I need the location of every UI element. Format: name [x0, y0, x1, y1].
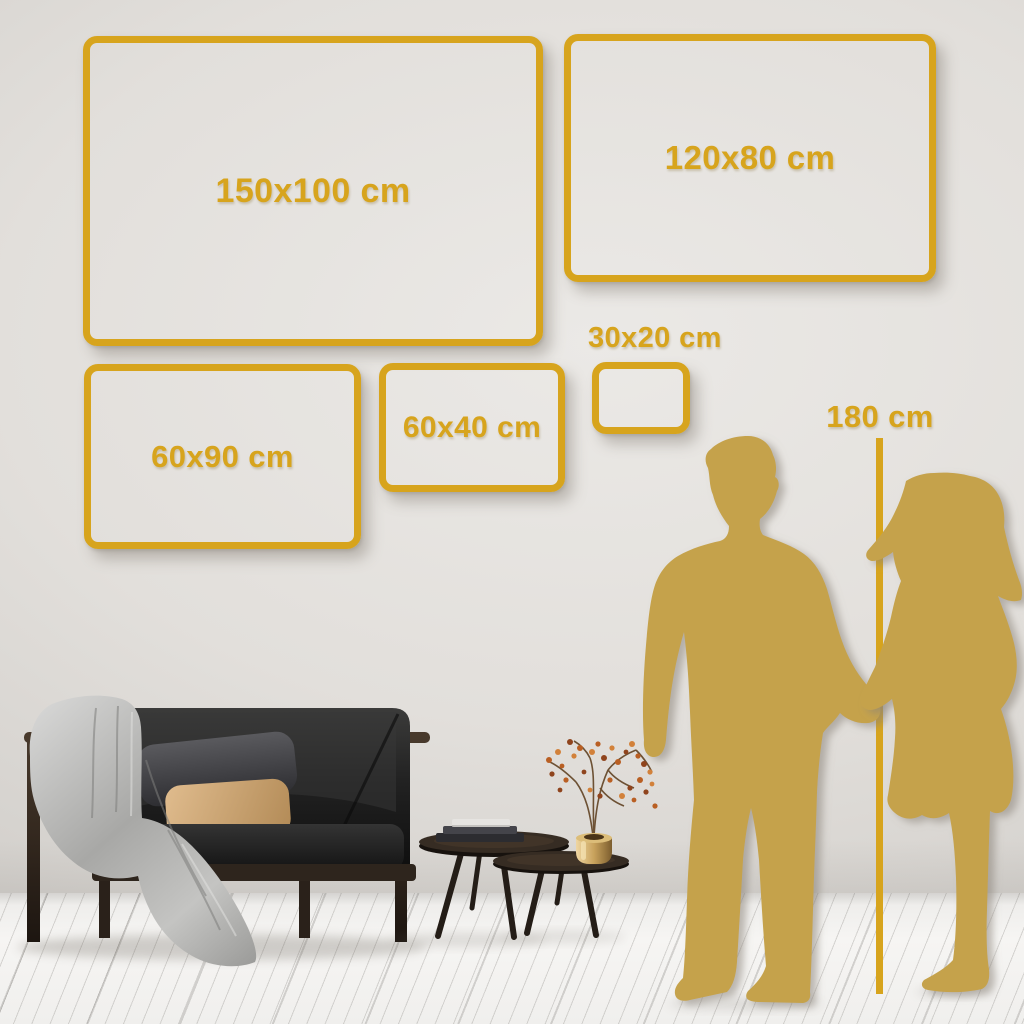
room-scene — [0, 0, 1024, 1024]
small-table-legs — [527, 870, 596, 935]
woman-silhouette — [860, 473, 1022, 993]
couple-silhouette — [643, 436, 1022, 1010]
vase-mouth — [584, 834, 604, 840]
man-silhouette — [643, 436, 880, 1003]
book-stack — [436, 819, 524, 842]
size-comparison-scene: 150x100 cm 120x80 cm 60x90 cm 60x40 cm 3… — [0, 0, 1024, 1024]
branch-berries — [546, 739, 658, 809]
table-shadow — [498, 931, 626, 943]
sofa — [17, 696, 430, 967]
vase-highlight — [581, 841, 586, 860]
